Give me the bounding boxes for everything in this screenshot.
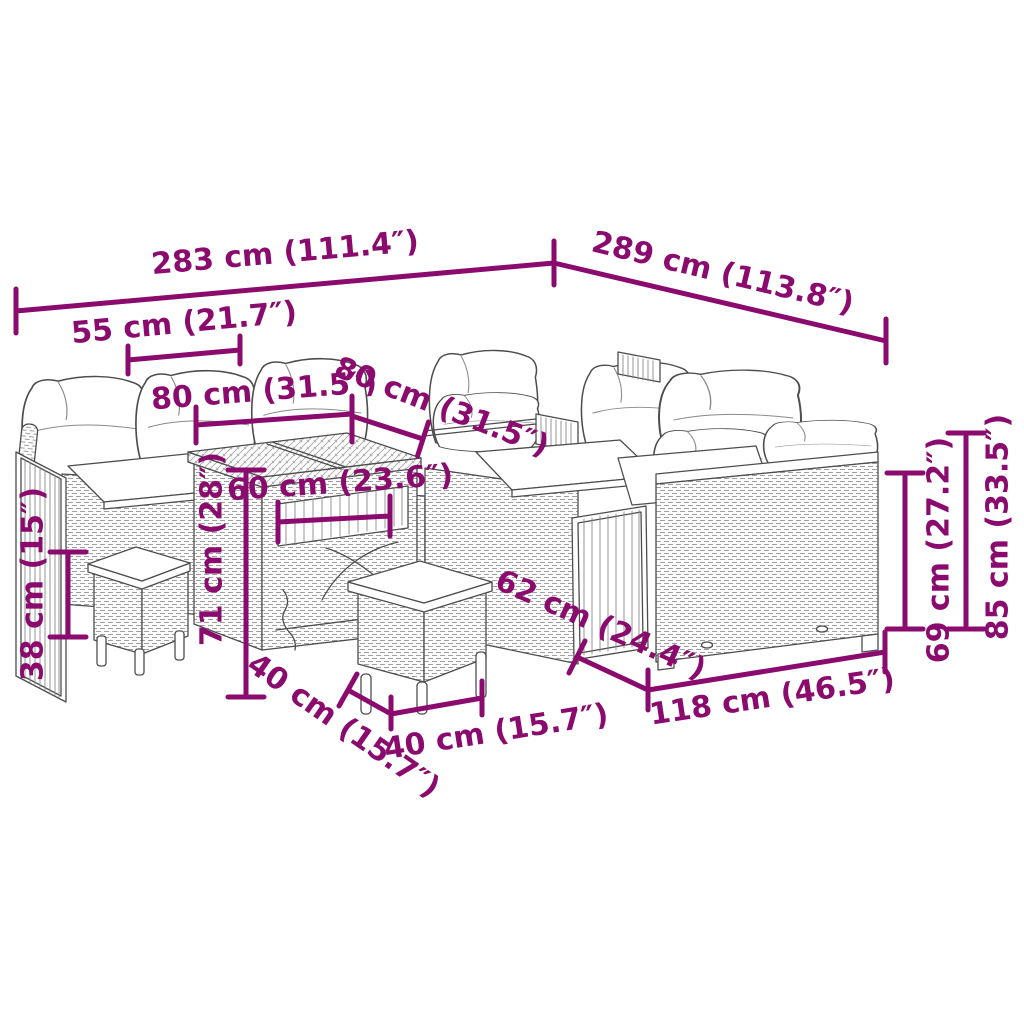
dimension-label: 283 cm (111.4″) — [150, 224, 420, 282]
ottoman-leg — [135, 649, 144, 675]
dimension-label: 289 cm (113.8″) — [588, 225, 857, 322]
ottoman-left — [88, 547, 190, 675]
ottoman-leg — [97, 636, 106, 666]
dimension-label: 85 cm (33.5″) — [981, 414, 1016, 641]
product-dimension-image: 283 cm (111.4″) 289 cm (113.8″) 55 cm (2… — [0, 0, 1024, 1024]
ottoman-leg — [361, 674, 371, 714]
dimension-label: 38 cm (15″) — [16, 487, 51, 681]
dimension-85: 85 cm (33.5″) — [948, 414, 1016, 641]
bench-rattan-body — [656, 462, 878, 662]
furniture-dimension-diagram: 283 cm (111.4″) 289 cm (113.8″) 55 cm (2… — [0, 0, 1024, 1024]
dimension-40-width: 40 cm (15.7″) — [382, 681, 611, 767]
bench-foot — [862, 634, 878, 652]
dimension-289: 289 cm (113.8″) — [554, 225, 886, 363]
dimension-55: 55 cm (21.7″) — [70, 295, 299, 374]
ottoman-leg — [175, 631, 184, 660]
dimension-label: 71 cm (28″) — [195, 452, 230, 646]
ottoman-center — [348, 561, 492, 714]
